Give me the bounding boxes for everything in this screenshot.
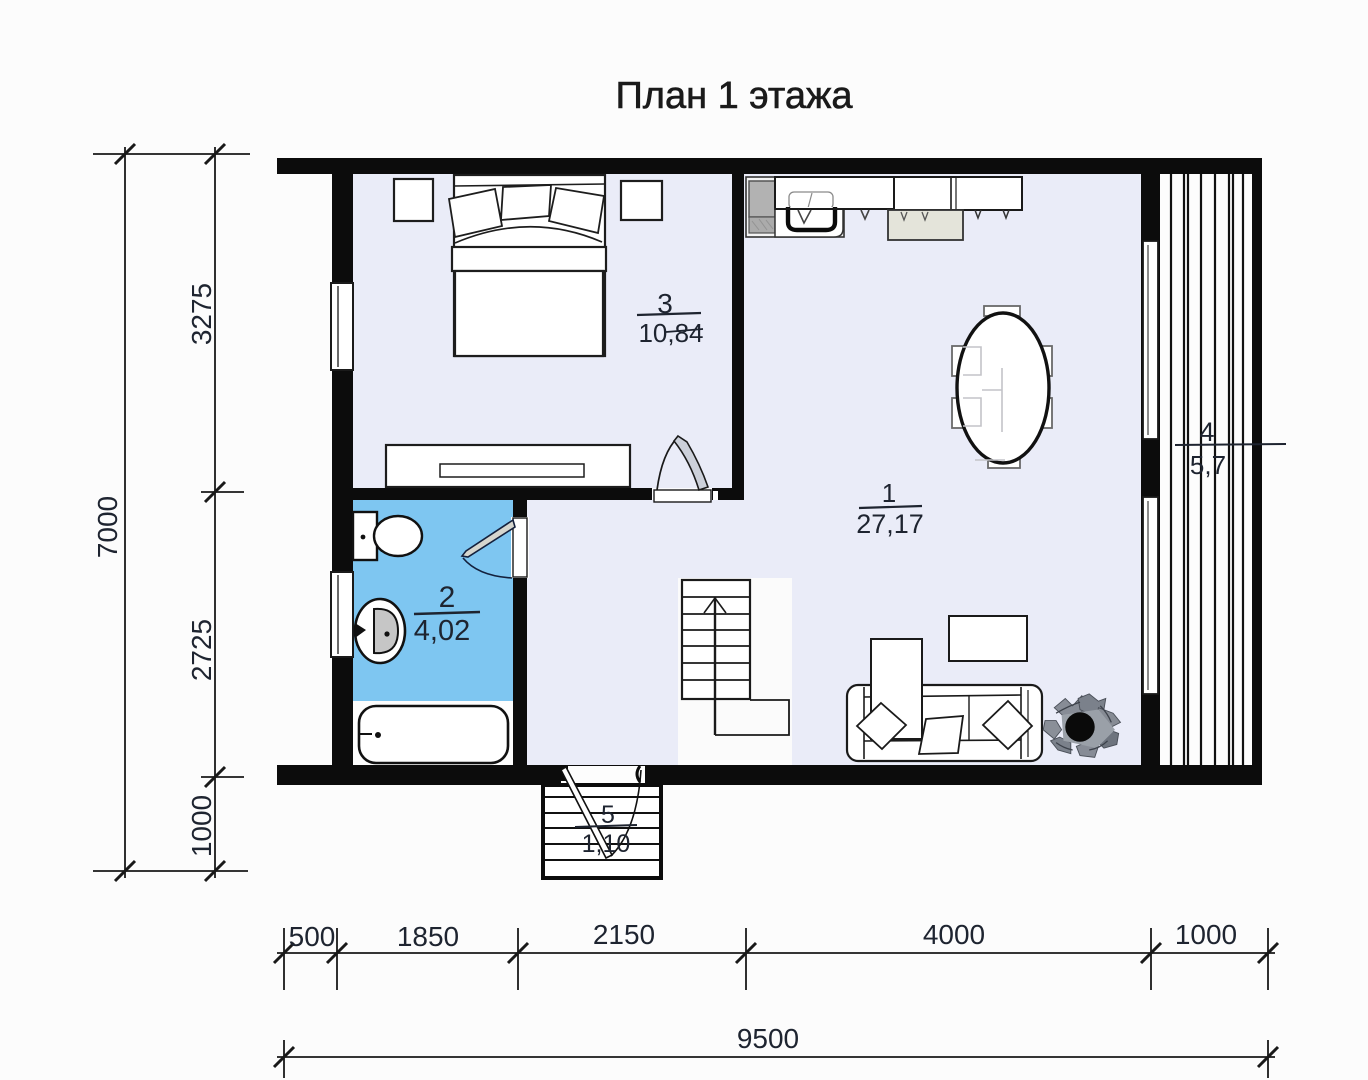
svg-text:4: 4	[1199, 417, 1214, 447]
svg-text:4000: 4000	[923, 919, 985, 950]
svg-text:2150: 2150	[593, 919, 655, 950]
svg-text:План 1 этажа: План 1 этажа	[615, 75, 853, 117]
svg-text:1,10: 1,10	[582, 830, 631, 858]
svg-text:500: 500	[289, 921, 336, 952]
svg-text:1850: 1850	[397, 921, 459, 952]
svg-text:4,02: 4,02	[414, 615, 470, 647]
svg-text:10,84: 10,84	[638, 318, 703, 348]
svg-text:27,17: 27,17	[856, 509, 924, 539]
svg-text:7000: 7000	[92, 496, 123, 558]
svg-text:1000: 1000	[186, 795, 217, 857]
svg-text:1000: 1000	[1175, 919, 1237, 950]
svg-text:3275: 3275	[186, 283, 217, 345]
svg-text:5,7: 5,7	[1190, 450, 1226, 480]
svg-text:2725: 2725	[186, 619, 217, 681]
svg-text:2: 2	[439, 581, 456, 614]
svg-text:9500: 9500	[737, 1023, 799, 1054]
svg-text:1: 1	[882, 478, 896, 508]
